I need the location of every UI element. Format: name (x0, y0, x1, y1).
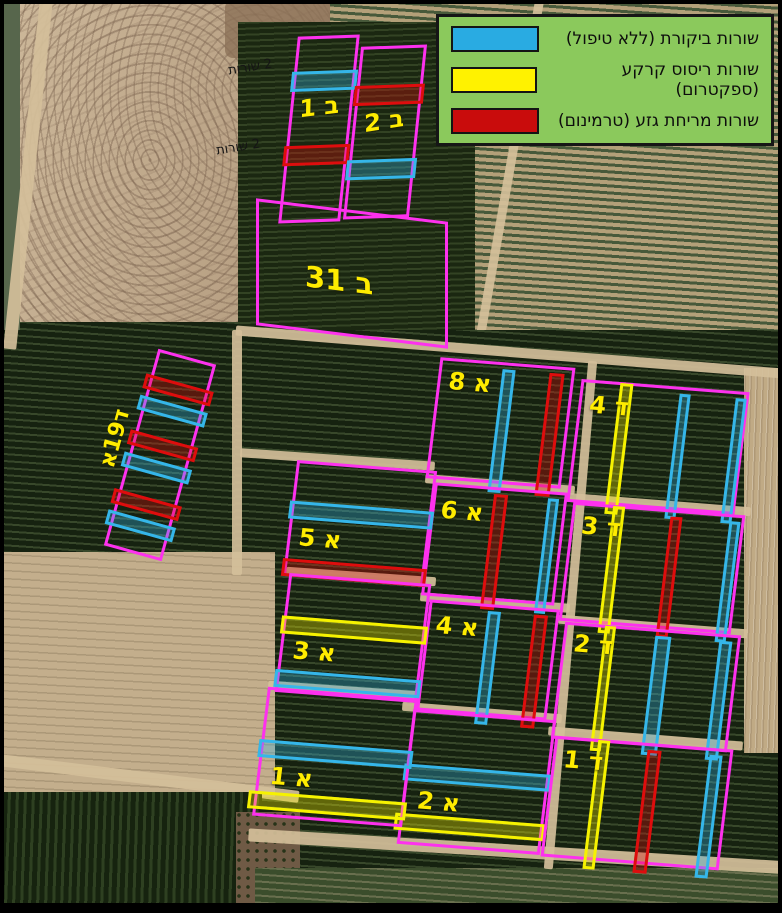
control-rows-bar (641, 636, 672, 756)
trunk-smear-color-swatch (451, 108, 539, 134)
plot-a5: א 5 (283, 460, 437, 587)
legend: שורות ביקורת (ללא טיפול) שורות ריסוס קרק… (436, 14, 774, 146)
plot-label: א 3 (291, 638, 336, 665)
ground-spray-rows-bar (247, 790, 407, 820)
plot-d1: ד 1 (541, 736, 734, 871)
ground-spray-rows-bar (393, 813, 545, 842)
plot-label: ד 1 (562, 747, 604, 774)
plot-d2: ד 2 (551, 622, 741, 753)
legend-row-control: שורות ביקורת (ללא טיפול) (451, 26, 759, 52)
legend-label: שורות ריסוס קרקע (ספקטרום) (537, 60, 759, 100)
plot-a1: א 1 (252, 687, 418, 828)
plot-label: ב 1 (299, 93, 339, 122)
plot-label: א 1 (269, 764, 314, 791)
plot-label: א 2 (416, 788, 461, 815)
plot-a2: א 2 (397, 709, 557, 855)
plot-a4: א 4 (416, 599, 560, 720)
plot-label: א 5 (297, 525, 342, 552)
plot-label: א 6 (439, 498, 484, 525)
plot-label: ב 31 (305, 262, 373, 299)
legend-label: שורות ביקורת (ללא טיפול) (566, 29, 759, 49)
trunk-smear-rows-bar (656, 516, 683, 638)
plot-a8: א 8 (426, 357, 576, 488)
control-rows-bar (290, 70, 358, 92)
plot-a6: א 6 (421, 482, 568, 605)
plot-b31: ב 31 (256, 198, 448, 349)
control-rows-bar (664, 394, 690, 520)
control-color-swatch (451, 26, 539, 52)
aerial-map: 2 שורות 2 שורות ב 1 ב 2 ב 31 ד19א א 8 א … (0, 0, 782, 913)
control-rows-bar (487, 369, 515, 493)
trunk-smear-rows-bar (353, 84, 425, 107)
trunk-smear-rows-bar (520, 615, 548, 729)
trunk-smear-rows-bar (480, 494, 508, 610)
plot-label: א 8 (447, 369, 492, 396)
legend-label: שורות מריחת גזע (טרמינום) (558, 111, 759, 131)
trunk-smear-rows-bar (534, 373, 564, 497)
trunk-smear-rows-bar (282, 144, 350, 166)
plot-label: ד 4 (588, 393, 630, 420)
control-rows-bar (345, 158, 417, 181)
plot-d4: ד 4 (566, 379, 749, 515)
control-rows-bar (694, 755, 722, 879)
trunk-smear-rows-bar (632, 750, 661, 874)
plot-label: ד 2 (572, 631, 614, 658)
plot-label: ד 3 (580, 514, 622, 541)
plot-d3: ד 3 (559, 502, 746, 634)
plot-label: א 4 (434, 613, 479, 640)
legend-row-ground-spray: שורות ריסוס קרקע (ספקטרום) (451, 60, 759, 100)
plot-a3: א 3 (275, 573, 432, 703)
ground-spray-color-swatch (451, 67, 537, 93)
legend-row-trunk-smear: שורות מריחת גזע (טרמינום) (451, 108, 759, 134)
plowed-strip (744, 368, 782, 753)
orchard-block (0, 792, 262, 913)
plot-label: ב 2 (364, 106, 404, 136)
